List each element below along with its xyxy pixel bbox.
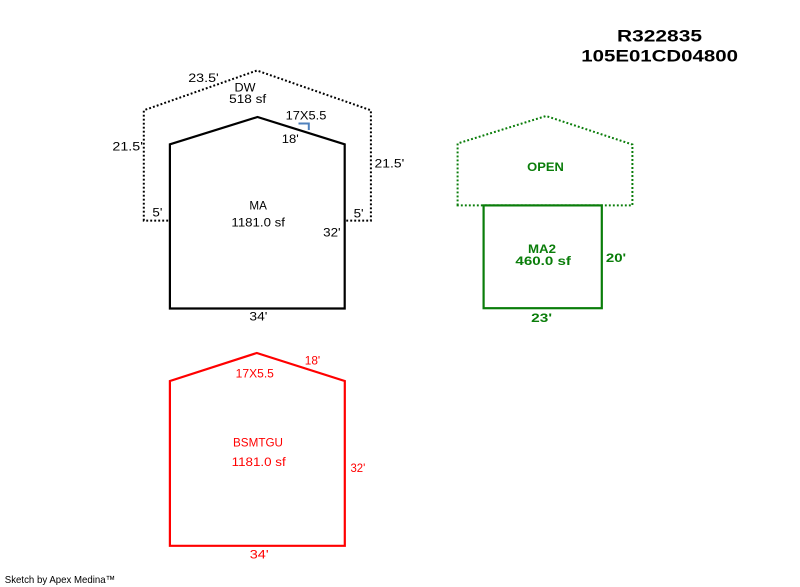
svg-text:17X5.5: 17X5.5 xyxy=(286,110,327,122)
svg-text:32': 32' xyxy=(351,463,366,475)
svg-text:34': 34' xyxy=(249,311,267,323)
svg-text:18': 18' xyxy=(282,134,299,146)
svg-text:1181.0 sf: 1181.0 sf xyxy=(232,457,287,469)
svg-text:20': 20' xyxy=(606,253,627,265)
svg-text:5': 5' xyxy=(354,209,364,221)
svg-text:32': 32' xyxy=(323,227,341,239)
svg-text:460.0 sf: 460.0 sf xyxy=(515,256,571,268)
svg-text:MA2: MA2 xyxy=(528,244,556,256)
svg-text:R322835: R322835 xyxy=(617,26,702,45)
svg-text:OPEN: OPEN xyxy=(527,162,564,174)
svg-text:518 sf: 518 sf xyxy=(229,94,267,106)
svg-text:Sketch by Apex Medina™: Sketch by Apex Medina™ xyxy=(5,574,116,586)
svg-text:21.5': 21.5' xyxy=(375,159,405,171)
svg-text:23.5': 23.5' xyxy=(188,73,219,85)
svg-text:23': 23' xyxy=(531,313,552,325)
svg-text:21.5': 21.5' xyxy=(112,142,143,154)
svg-text:DW: DW xyxy=(235,83,256,95)
svg-text:1181.0 sf: 1181.0 sf xyxy=(231,218,285,230)
svg-text:34': 34' xyxy=(250,550,269,562)
svg-text:18': 18' xyxy=(305,356,320,368)
svg-text:5': 5' xyxy=(152,208,162,220)
svg-text:105E01CD04800: 105E01CD04800 xyxy=(581,46,738,65)
svg-text:BSMTGU: BSMTGU xyxy=(233,438,283,450)
svg-text:MA: MA xyxy=(249,201,267,213)
svg-text:17X5.5: 17X5.5 xyxy=(236,369,274,381)
